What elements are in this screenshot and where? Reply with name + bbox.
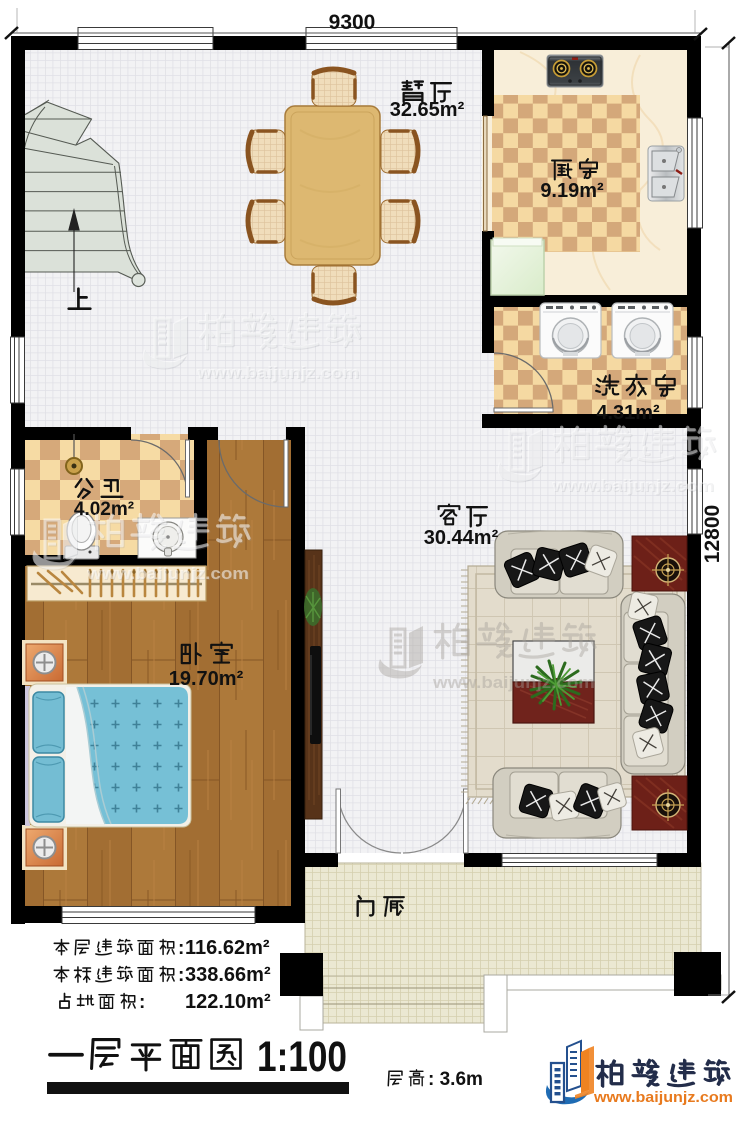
svg-text:338.66m²: 338.66m² xyxy=(185,964,271,986)
svg-text::: : xyxy=(178,938,184,959)
svg-text:116.62m²: 116.62m² xyxy=(185,937,270,959)
svg-text:9300: 9300 xyxy=(329,11,376,34)
svg-text:9.19m²: 9.19m² xyxy=(540,180,604,202)
svg-text:: 3.6m: : 3.6m xyxy=(428,1069,483,1090)
svg-text:4.31m²: 4.31m² xyxy=(596,402,660,424)
svg-text::: : xyxy=(139,992,145,1013)
svg-text::: : xyxy=(178,965,184,986)
svg-text:32.65m²: 32.65m² xyxy=(390,99,465,121)
svg-text:4.02m²: 4.02m² xyxy=(74,499,134,520)
svg-text:www.baijunjz.com: www.baijunjz.com xyxy=(593,1089,733,1106)
svg-text:30.44m²: 30.44m² xyxy=(424,527,499,549)
svg-text:12800: 12800 xyxy=(701,505,724,563)
svg-text:19.70m²: 19.70m² xyxy=(169,668,244,690)
svg-text:122.10m²: 122.10m² xyxy=(185,991,271,1013)
svg-text:1:100: 1:100 xyxy=(257,1033,347,1081)
